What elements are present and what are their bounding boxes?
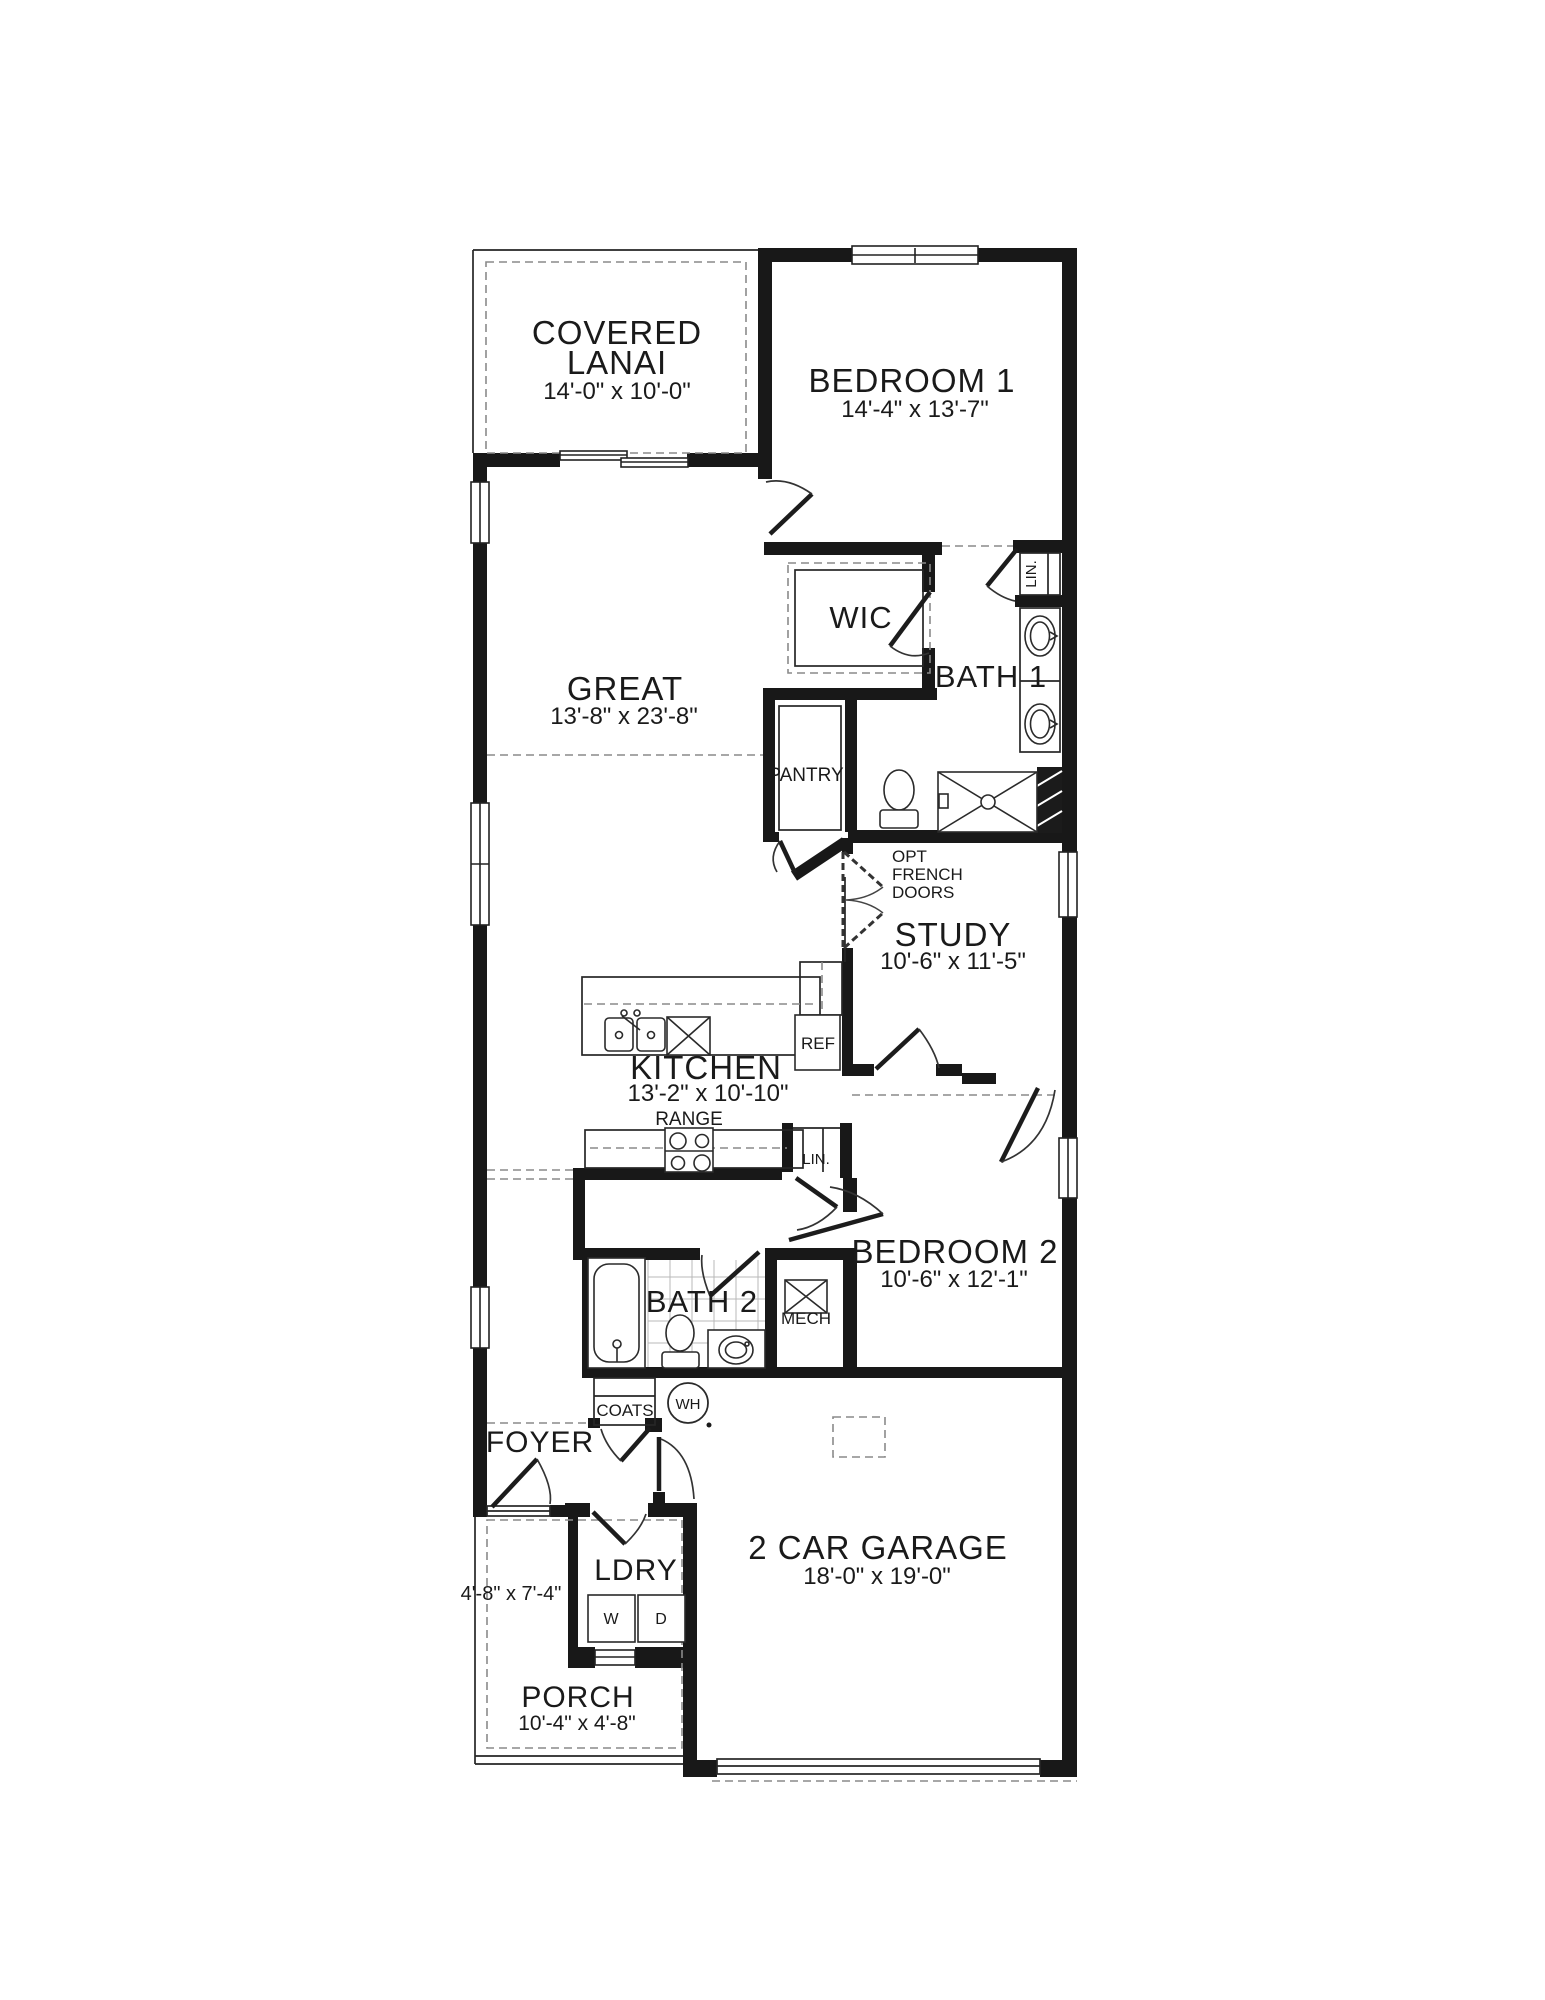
range-burners (665, 1128, 713, 1172)
bath2-label: BATH 2 (646, 1284, 758, 1319)
range-label: RANGE (655, 1109, 723, 1130)
window-great-2 (471, 803, 489, 925)
mech-label: MECH (781, 1309, 831, 1328)
window-great-1 (471, 482, 489, 543)
bedroom1-dim: 14'-4" x 13'-7" (841, 396, 989, 423)
toilet-bath2 (662, 1315, 699, 1368)
coats-label: COATS (596, 1401, 653, 1420)
door-wic (890, 592, 930, 656)
labels: COVERED LANAI 14'-0" x 10'-0" BEDROOM 1 … (461, 314, 1059, 1735)
window-bedroom2 (1059, 1138, 1077, 1198)
door-coats (601, 1428, 650, 1461)
bedroom2-dim: 10'-6" x 12'-1" (880, 1266, 1028, 1293)
opt-french-2: FRENCH (892, 865, 963, 884)
hatched-wall (1037, 767, 1062, 833)
wh-label: WH (676, 1396, 701, 1413)
garage-label: 2 CAR GARAGE (748, 1529, 1008, 1566)
great-label: GREAT (567, 670, 683, 707)
foyer-dim: 4'-8" x 7'-4" (461, 1583, 562, 1605)
lanai-dim: 14'-0" x 10'-0" (543, 378, 691, 405)
door-bath1 (987, 549, 1017, 601)
bedroom2-label: BEDROOM 2 (851, 1233, 1058, 1270)
window-bedroom1 (852, 246, 978, 264)
upper-counter (800, 962, 842, 1015)
lanai-label-2: LANAI (567, 344, 667, 381)
door-bedroom1 (766, 481, 812, 534)
floor-plan-drawing: COVERED LANAI 14'-0" x 10'-0" BEDROOM 1 … (0, 0, 1545, 2000)
door-garage-entry (659, 1437, 694, 1499)
lin-bath1-label: LIN. (1023, 560, 1040, 588)
door-ldry (593, 1512, 646, 1544)
shower-bath1 (938, 772, 1037, 832)
door-bedroom2 (1001, 1088, 1055, 1162)
door-study (876, 1029, 939, 1069)
kitchen-dim: 13'-2" x 10'-10" (628, 1080, 789, 1107)
porch-dim: 10'-4" x 4'-8" (518, 1712, 635, 1735)
sink-bath2 (708, 1330, 765, 1368)
ref-label: REF (801, 1034, 835, 1053)
attic-access-dash (833, 1417, 885, 1457)
doors (492, 481, 1055, 1544)
bathtub (588, 1258, 645, 1368)
pantry-label: PANTRY (768, 765, 844, 786)
foyer-label: FOYER (486, 1426, 594, 1459)
angled-wall (794, 842, 845, 876)
sliding-door-lanai (560, 451, 688, 467)
dryer-label: D (655, 1611, 667, 1628)
opt-french-3: DOORS (892, 883, 954, 902)
great-dim: 13'-8" x 23'-8" (550, 703, 698, 730)
door-hall-a (796, 1178, 837, 1230)
floor-plan-sheet: COVERED LANAI 14'-0" x 10'-0" BEDROOM 1 … (0, 0, 1545, 2000)
door-front (492, 1459, 550, 1507)
opt-french-1: OPT (892, 847, 927, 866)
window-study (1059, 852, 1077, 917)
lin-hall-label: LIN. (802, 1151, 830, 1168)
kitchen-sink (605, 1010, 665, 1051)
door-pantry (773, 841, 795, 873)
optional-french-doors-symbol (843, 852, 883, 948)
bath1-label: BATH 1 (935, 659, 1047, 694)
bedroom1-label: BEDROOM 1 (808, 362, 1015, 399)
toilet-bath1 (880, 770, 918, 828)
window-ldry (595, 1650, 635, 1665)
garage-dim: 18'-0" x 19'-0" (803, 1563, 951, 1590)
washer-label: W (603, 1611, 619, 1628)
window-hall (471, 1287, 489, 1348)
study-dim: 10'-6" x 11'-5" (880, 948, 1026, 975)
ldry-label: LDRY (594, 1554, 677, 1587)
wic-label: WIC (829, 600, 892, 635)
porch-label: PORCH (521, 1681, 634, 1714)
kitchen-pass-dash (487, 1170, 573, 1179)
